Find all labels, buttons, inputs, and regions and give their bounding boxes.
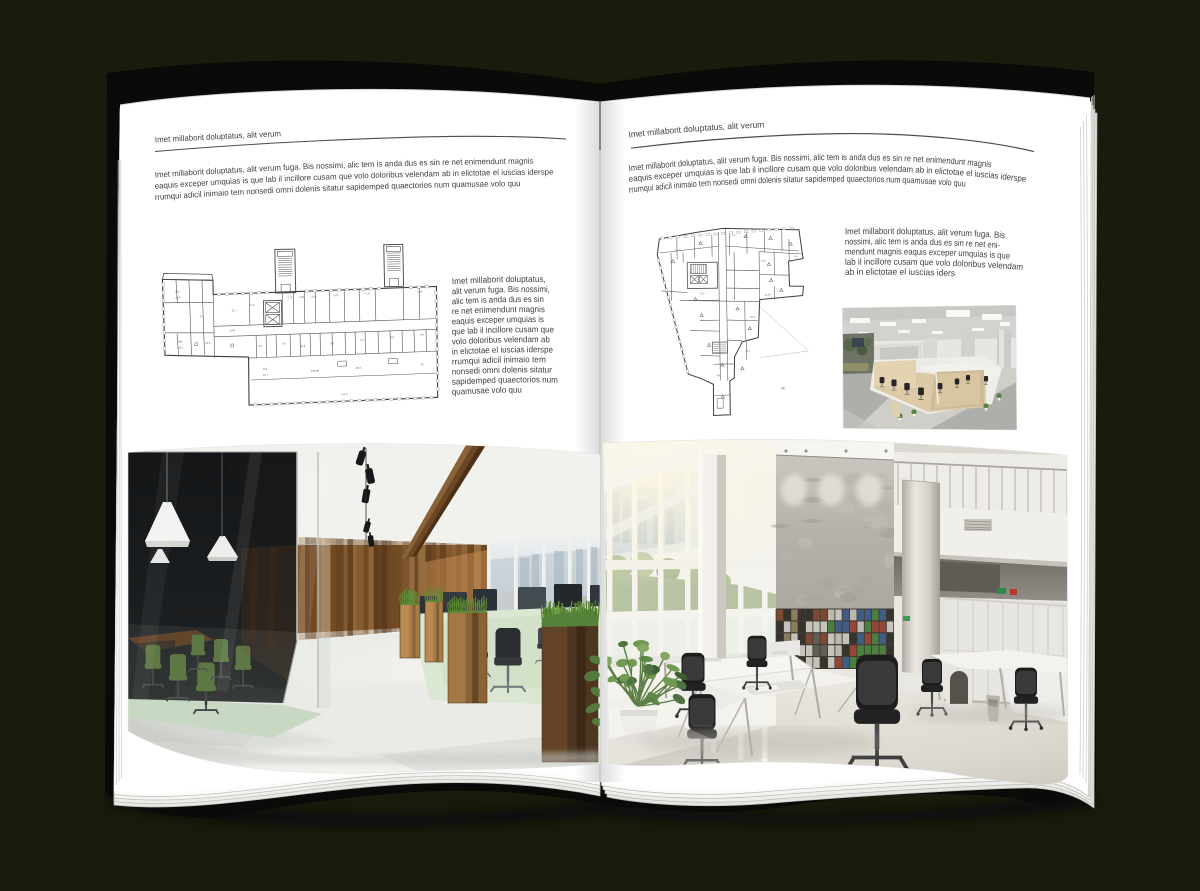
svg-text:ab in elictotae el iuscias ide: ab in elictotae el iuscias iders [845, 267, 956, 279]
svg-text:11.7: 11.7 [360, 338, 365, 342]
svg-text:9.1: 9.1 [200, 314, 204, 318]
svg-text:1.45: 1.45 [417, 289, 423, 293]
svg-text:3.00: 3.00 [333, 293, 339, 297]
svg-text:4.8: 4.8 [258, 344, 262, 348]
svg-text:11.08: 11.08 [765, 293, 772, 296]
svg-text:42.2: 42.2 [178, 345, 184, 349]
svg-text:23a: 23a [263, 367, 268, 371]
svg-text:5.75: 5.75 [365, 292, 371, 296]
svg-text:75.3: 75.3 [700, 292, 705, 295]
svg-text:46.3: 46.3 [356, 366, 362, 370]
svg-text:21.9: 21.9 [761, 259, 766, 262]
svg-text:АБ: АБ [781, 386, 785, 390]
svg-text:31.7: 31.7 [232, 308, 238, 312]
svg-text:9.8: 9.8 [282, 341, 286, 345]
svg-text:16.6: 16.6 [205, 341, 211, 345]
svg-text:20b: 20b [175, 290, 180, 294]
svg-text:12.4: 12.4 [745, 350, 750, 353]
svg-text:4.43: 4.43 [230, 328, 236, 332]
svg-text:2.72: 2.72 [249, 303, 255, 307]
svg-text:6.8: 6.8 [420, 332, 424, 336]
svg-text:4.8: 4.8 [390, 335, 394, 339]
svg-text:2.75: 2.75 [287, 295, 293, 299]
svg-text:28b: 28b [178, 339, 183, 343]
svg-text:140.88: 140.88 [311, 369, 320, 373]
svg-text:2.30: 2.30 [311, 295, 317, 299]
svg-text:31.7: 31.7 [263, 373, 269, 377]
svg-text:14.2: 14.2 [675, 249, 680, 252]
svg-text:42.6: 42.6 [175, 295, 181, 299]
svg-text:8.9: 8.9 [330, 341, 334, 345]
svg-text:Люкс: Люкс [750, 316, 756, 319]
svg-text:2-й эт: 2-й эт [341, 392, 349, 396]
svg-text:11.8: 11.8 [300, 344, 305, 348]
svg-text:2.80: 2.80 [299, 295, 305, 299]
